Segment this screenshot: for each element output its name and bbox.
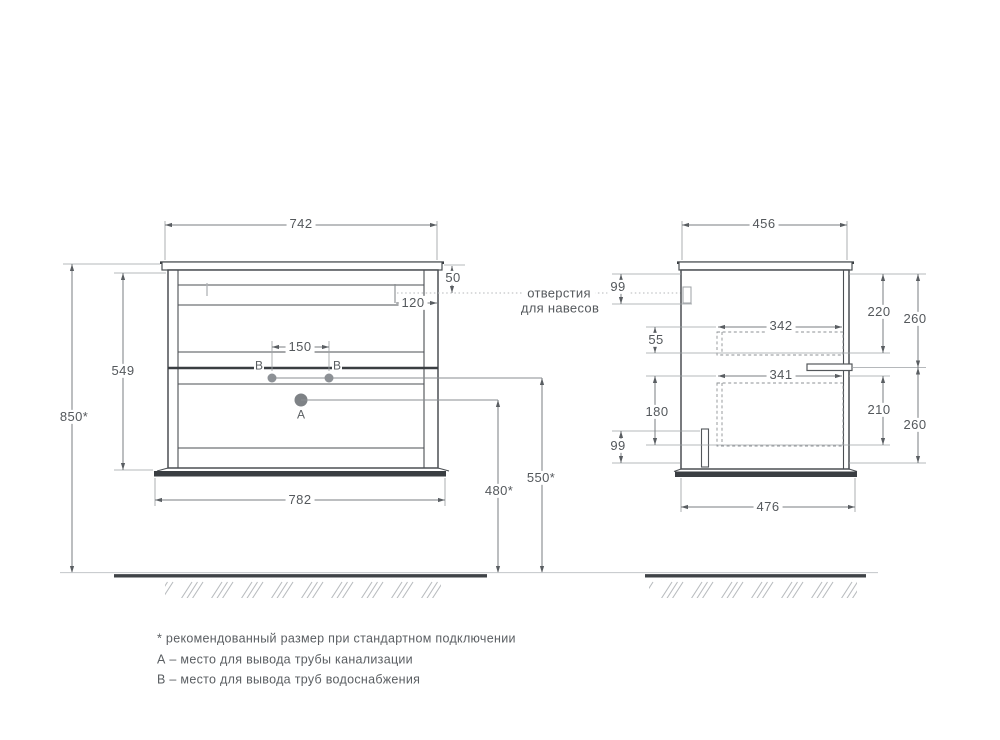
- point-b-right-label: В: [332, 359, 342, 372]
- side-pipe-slot: [702, 429, 709, 467]
- front-countertop: [162, 262, 442, 270]
- ground-hatch-side: [649, 579, 857, 598]
- dim-120: 120: [399, 296, 428, 310]
- hanger-holes-callout-line2: для навесов: [517, 302, 603, 317]
- dim-260-top: 260: [901, 312, 930, 326]
- cabinet-technical-drawing: [0, 0, 1000, 740]
- side-countertop: [679, 262, 852, 270]
- dim-480: 480*: [482, 484, 516, 498]
- dim-260-bottom: 260: [901, 418, 930, 432]
- dim-549: 549: [109, 364, 138, 378]
- hanger-holes-callout-line1: отверстия: [523, 287, 595, 302]
- note-point-a: А – место для вывода трубы канализации: [157, 653, 413, 668]
- dim-742: 742: [287, 217, 316, 231]
- dim-456: 456: [750, 217, 779, 231]
- dim-342: 342: [767, 319, 796, 333]
- dim-476: 476: [754, 500, 783, 514]
- technical-drawing-page: 742 50 120 150 549 850* 480* 550* 782 В …: [0, 0, 1000, 740]
- dim-55: 55: [645, 333, 666, 347]
- dim-220: 220: [865, 305, 894, 319]
- dim-850: 850*: [57, 410, 91, 424]
- note-point-b: В – место для вывода труб водоснабжения: [157, 673, 420, 688]
- point-a-label: А: [296, 408, 306, 421]
- dim-50: 50: [442, 271, 463, 285]
- ground: [60, 573, 878, 598]
- dim-550: 550*: [524, 471, 558, 485]
- note-recommended-size: * рекомендованный размер при стандартном…: [157, 632, 516, 647]
- dim-180: 180: [643, 405, 672, 419]
- hanger-bracket: [683, 287, 691, 303]
- dim-782: 782: [286, 493, 315, 507]
- dim-150: 150: [286, 340, 315, 354]
- dim-99-bottom: 99: [607, 439, 628, 453]
- side-plinth: [675, 472, 857, 478]
- dim-341: 341: [767, 368, 796, 382]
- dim-210: 210: [865, 403, 894, 417]
- front-plinth: [154, 471, 446, 477]
- ground-hatch-front: [165, 579, 441, 598]
- dim-99-top: 99: [607, 280, 628, 294]
- side-divider-tab: [807, 364, 852, 371]
- point-b-left-label: В: [254, 359, 264, 372]
